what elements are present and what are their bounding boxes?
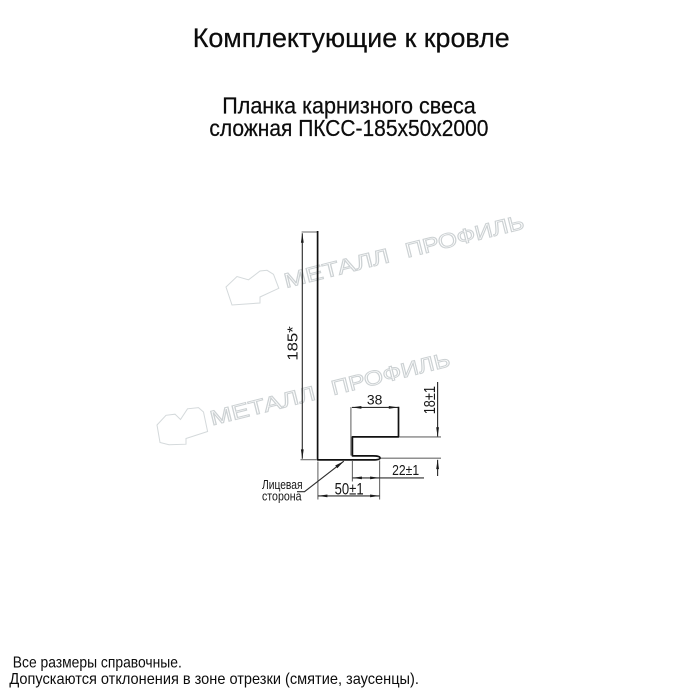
svg-text:МЕТАЛЛ: МЕТАЛЛ (282, 244, 392, 292)
svg-text:Допускаются отклонения в зоне: Допускаются отклонения в зоне отрезки (с… (9, 671, 419, 688)
svg-text:сторона: сторона (262, 489, 302, 504)
svg-text:МЕТАЛЛ: МЕТАЛЛ (208, 382, 318, 430)
svg-text:ПРОФИЛЬ: ПРОФИЛЬ (403, 211, 527, 263)
svg-text:185*: 185* (284, 326, 301, 360)
svg-text:50±1: 50±1 (335, 480, 364, 499)
svg-text:Комплектующие к кровле: Комплектующие к кровле (193, 23, 510, 53)
svg-text:Все размеры справочные.: Все размеры справочные. (13, 655, 182, 672)
svg-text:38: 38 (367, 392, 383, 408)
svg-text:18±1: 18±1 (422, 386, 439, 414)
svg-text:сложная ПКСС-185х50х2000: сложная ПКСС-185х50х2000 (209, 115, 488, 141)
svg-text:22±1: 22±1 (392, 463, 419, 479)
